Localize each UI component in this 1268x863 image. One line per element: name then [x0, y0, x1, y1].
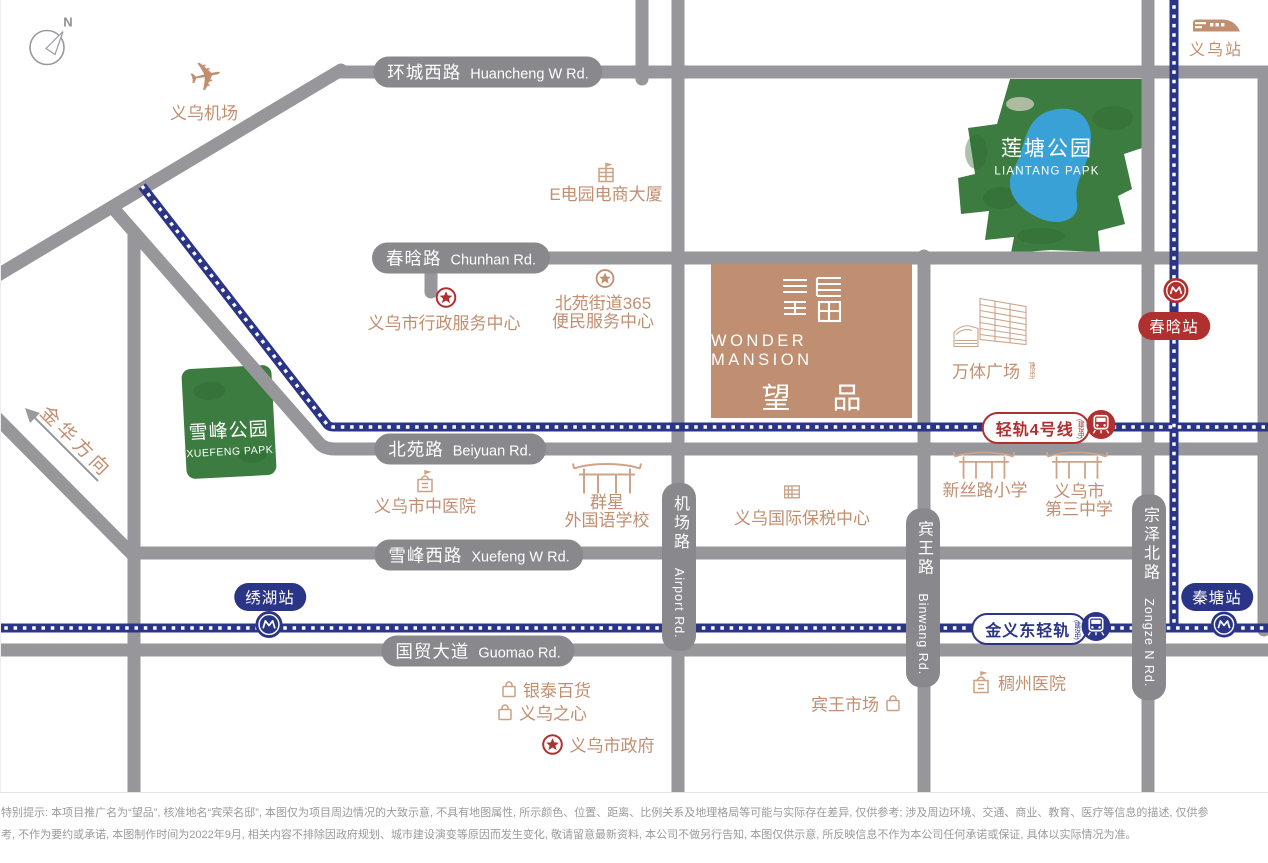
station-badge-qintang: 秦塘站 [1181, 583, 1253, 611]
disclaimer: 特别提示: 本项目推广名为“望品”, 核准地名“宾荣名邸”, 本图仅为项目周边情… [1, 802, 1268, 846]
xingzheng-star-icon [435, 287, 457, 314]
project-name-en: WONDER MANSION [711, 332, 912, 370]
road-label-guomao-zh: 国贸大道 [395, 639, 469, 664]
poi-wanti-note: (建设中) [1028, 362, 1034, 379]
poi-yintai-label: 银泰百货 [523, 677, 591, 702]
map-canvas: N ✈ 义乌机场 义乌站 环城西路 Huancheng W Rd. 春晗路 Ch… [0, 0, 1268, 793]
road-label-beiyuan: 北苑路 Beiyuan Rd. [374, 434, 546, 465]
rail-badge-jinyidong: 金义东轻轨 (建设中) [971, 613, 1087, 645]
road-label-guomao: 国贸大道 Guomao Rd. [381, 636, 574, 667]
road-label-guomao-en: Guomao Rd. [478, 646, 560, 662]
station-badge-chunhan: 春晗站 [1138, 312, 1210, 340]
road-label-xuefeng-w-en: Xuefeng W Rd. [471, 550, 569, 566]
poi-zhongyiyuan: 义乌市中医院 [374, 498, 476, 516]
jinyidong-train-icon [1081, 611, 1112, 647]
road-label-binwang: 宾王路 Binwang Rd. [906, 508, 940, 687]
station-badge-xiuhu: 绣湖站 [234, 583, 306, 611]
park-label-liantang-en: LIANTANG PAPK [994, 166, 1099, 178]
xiuhu-metro-icon [255, 611, 283, 644]
park-label-liantang-zh: 莲塘公园 [994, 133, 1099, 163]
poi-yiwu-airport: 义乌机场 [170, 105, 238, 123]
poi-binwang-market: 宾王市场 [811, 691, 901, 716]
road-label-jichang-en: Airport Rd. [672, 556, 686, 639]
binwang-market-bag-icon [885, 694, 901, 712]
poi-by365: 北苑街道365 便民服务中心 [552, 295, 654, 331]
project-block-wonder-mansion: WONDER MANSION 望 品 [711, 264, 912, 418]
rail-badge-jinyidong-label: 金义东轻轨 [985, 617, 1070, 641]
road-label-chunhan-en: Chunhan Rd. [451, 253, 536, 269]
xinsilu-gate-icon [952, 449, 1016, 486]
chouzhou-hospital-icon [970, 670, 992, 694]
road-label-binwang-en: Binwang Rd. [916, 582, 930, 676]
compass-north-label: N [63, 15, 72, 30]
sanzhong-gate-icon [1045, 449, 1109, 486]
poi-xinsilu: 新丝路小学 [943, 482, 1028, 500]
compass [25, 22, 75, 77]
road-label-xuefeng-w-zh: 雪峰西路 [388, 543, 462, 568]
poi-wanti-label: 万体广场 [952, 358, 1020, 383]
road-label-binwang-zh: 宾王路 [915, 520, 932, 577]
poi-wanti: 万体广场 (建设中) [952, 358, 1034, 383]
yiwuzhixin-bag-icon [497, 703, 513, 721]
by365-star-icon [595, 269, 615, 294]
poi-qunxing-line1: 群星 [565, 494, 650, 512]
road-label-chunhan-zh: 春晗路 [386, 246, 442, 271]
disclaimer-line1: 特别提示: 本项目推广名为“望品”, 核准地名“宾荣名邸”, 本图仅为项目周边情… [1, 802, 1268, 824]
road-label-huancheng-zh: 环城西路 [387, 60, 461, 85]
road-label-zongze-en: Zongze N Rd. [1142, 587, 1156, 688]
road-label-huancheng-en: Huancheng W Rd. [470, 67, 588, 83]
wonder-mansion-logo [780, 275, 844, 325]
road-huancheng-diagonal [1, 70, 341, 284]
baoshui-icon [782, 481, 802, 506]
poi-binwang-market-label: 宾王市场 [811, 691, 879, 716]
road-label-huancheng: 环城西路 Huancheng W Rd. [373, 57, 602, 88]
zhongyiyuan-icon [414, 470, 436, 499]
line4-train-icon [1086, 409, 1117, 445]
poi-qunxing: 群星 外国语学校 [565, 494, 650, 530]
airport-icon-wrap: ✈ [189, 57, 223, 97]
rail-badge-line4: 轻轨4号线 (建设中) [982, 412, 1090, 444]
road-label-zongze: 宗泽北路 Zongze N Rd. [1132, 494, 1166, 700]
poi-chouzhou-label: 稠州医院 [998, 670, 1066, 695]
poi-xingzheng: 义乌市行政服务中心 [368, 315, 521, 333]
poi-yiwuzhixin: 义乌之心 [497, 700, 587, 725]
road-label-jichang-zh: 机场路 [671, 495, 688, 552]
road-label-xuefeng-w: 雪峰西路 Xuefeng W Rd. [374, 540, 583, 571]
rail-badge-line4-note: (建设中) [1076, 419, 1083, 438]
disclaimer-line2: 考, 不作为要约或承诺, 本图制作时间为2022年9月, 相关内容不排除因政府规… [1, 824, 1268, 846]
shizhengfu-star-icon [542, 733, 564, 755]
park-label-xuefeng-zh: 雪峰公园 [184, 414, 272, 446]
label-yiwu-station: 义乌站 [1189, 36, 1243, 60]
poi-edian: E电园电商大厦 [549, 186, 662, 204]
poi-baoshui: 义乌国际保税中心 [734, 510, 870, 528]
poi-yiwuzhixin-label: 义乌之心 [519, 700, 587, 725]
wanti-building-icon [950, 295, 1036, 366]
road-label-chunhan: 春晗路 Chunhan Rd. [372, 243, 550, 274]
poi-shizhengfu: 义乌市政府 [542, 732, 655, 757]
poi-shizhengfu-label: 义乌市政府 [570, 732, 655, 757]
poi-sanzhong-line1: 义乌市 [1045, 483, 1113, 501]
rail-badge-jinyidong-note: (建设中) [1072, 620, 1079, 639]
promo-map-page: N ✈ 义乌机场 义乌站 环城西路 Huancheng W Rd. 春晗路 Ch… [0, 0, 1268, 863]
poi-qunxing-line2: 外国语学校 [565, 512, 650, 530]
chunhan-metro-icon [1163, 278, 1189, 309]
park-label-xuefeng: 雪峰公园 XUEFENG PAPK [184, 414, 273, 460]
yintai-bag-icon [501, 680, 517, 698]
road-label-zongze-zh: 宗泽北路 [1141, 506, 1158, 582]
project-name-zh: 望 品 [744, 375, 878, 417]
poi-by365-line1: 北苑街道365 [552, 295, 654, 313]
poi-sanzhong: 义乌市 第三中学 [1045, 483, 1113, 519]
road-label-jichang: 机场路 Airport Rd. [662, 483, 696, 651]
road-label-beiyuan-en: Beiyuan Rd. [453, 444, 532, 460]
poi-sanzhong-line2: 第三中学 [1045, 501, 1113, 519]
rail-badge-line4-label: 轻轨4号线 [996, 416, 1074, 440]
poi-chouzhou: 稠州医院 [970, 670, 1066, 695]
poi-yintai: 银泰百货 [501, 677, 591, 702]
qintang-metro-icon [1211, 611, 1238, 643]
road-label-beiyuan-zh: 北苑路 [388, 437, 444, 462]
park-label-liantang: 莲塘公园 LIANTANG PAPK [994, 133, 1099, 178]
poi-by365-line2: 便民服务中心 [552, 313, 654, 331]
airplane-icon: ✈ [185, 54, 226, 100]
